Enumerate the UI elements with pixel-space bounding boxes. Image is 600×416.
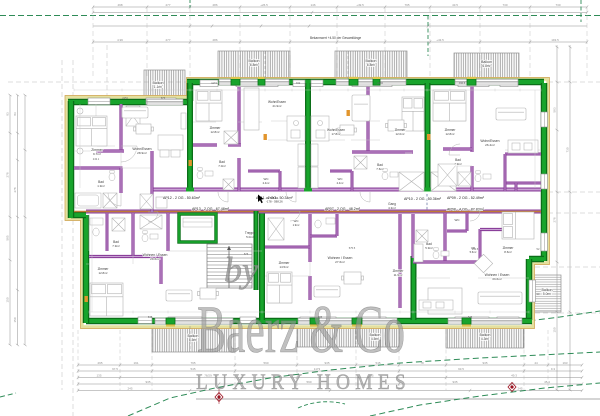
svg-text:1.9m²: 1.9m²	[293, 223, 300, 227]
svg-text:6.8m²: 6.8m²	[250, 63, 258, 67]
svg-text:12.8m²: 12.8m²	[99, 271, 108, 275]
svg-text:146: 146	[310, 3, 315, 7]
svg-text:97.5: 97.5	[112, 367, 118, 371]
svg-text:WC: WC	[294, 219, 300, 223]
svg-text:135: 135	[96, 373, 101, 377]
svg-text:WC: WC	[338, 177, 344, 181]
svg-text:12.0m²: 12.0m²	[396, 132, 405, 136]
svg-text:295: 295	[97, 361, 102, 365]
svg-text:5.9m²: 5.9m²	[425, 246, 432, 250]
svg-text:243.1: 243.1	[93, 157, 100, 161]
svg-text:193.5: 193.5	[551, 38, 559, 42]
svg-text:5.0m²: 5.0m²	[543, 292, 551, 296]
svg-text:545: 545	[468, 315, 473, 319]
svg-text:4.96: 4.96	[117, 38, 123, 42]
svg-text:by: by	[224, 250, 258, 290]
svg-text:28.9m²: 28.9m²	[137, 151, 147, 155]
svg-text:278: 278	[6, 172, 10, 177]
svg-text:AP08 - 4 OG - 87.83m²: AP08 - 4 OG - 87.83m²	[447, 208, 485, 212]
svg-text:7.0m²: 7.0m²	[218, 164, 225, 168]
svg-text:5.0m²: 5.0m²	[246, 235, 254, 239]
svg-text:278: 278	[553, 217, 557, 222]
svg-text:1.1m²: 1.1m²	[154, 85, 162, 89]
svg-text:730: 730	[566, 147, 570, 152]
svg-text:Baerz & Co: Baerz & Co	[197, 291, 405, 367]
svg-text:2453: 2453	[122, 96, 128, 100]
svg-text:575.5: 575.5	[349, 246, 356, 250]
svg-text:+26.5: +26.5	[260, 3, 268, 7]
svg-text:150: 150	[13, 317, 17, 322]
svg-text:AP12 - 2 OG - 50.63m²: AP12 - 2 OG - 50.63m²	[163, 196, 201, 200]
svg-text:730: 730	[555, 3, 560, 7]
svg-text:795: 795	[190, 361, 195, 365]
svg-text:2453: 2453	[377, 81, 383, 85]
svg-text:44: 44	[534, 361, 538, 365]
svg-text:6.8m²: 6.8m²	[482, 64, 490, 68]
svg-text:12.8m²: 12.8m²	[446, 132, 455, 136]
svg-text:245: 245	[127, 386, 132, 390]
svg-text:545: 545	[148, 315, 153, 319]
svg-text:245: 245	[517, 386, 522, 390]
svg-text:4.3m²: 4.3m²	[388, 206, 396, 210]
svg-text:286: 286	[212, 3, 217, 7]
svg-text:Bekannwert +4.50 der Gesamtlä: Bekannwert +4.50 der Gesamtlänge	[310, 36, 361, 40]
svg-text:1.9m²: 1.9m²	[97, 184, 104, 188]
svg-text:150: 150	[6, 297, 10, 302]
svg-text:83: 83	[13, 112, 17, 116]
svg-text:2.4m²: 2.4m²	[337, 181, 344, 185]
svg-text:575: 575	[161, 96, 166, 100]
svg-text:1173: 1173	[211, 81, 217, 85]
svg-text:277: 277	[165, 3, 170, 7]
svg-text:490: 490	[296, 81, 301, 85]
svg-text:-178 - 598.26: -178 - 598.26	[266, 200, 283, 204]
svg-text:286: 286	[212, 38, 217, 42]
svg-text:93.5: 93.5	[458, 367, 464, 371]
svg-text:575: 575	[244, 252, 249, 256]
svg-text:+43.5: +43.5	[436, 38, 444, 42]
svg-text:193: 193	[562, 361, 567, 365]
svg-text:277: 277	[165, 38, 170, 42]
svg-text:490.5: 490.5	[459, 81, 466, 85]
svg-text:8.6m²: 8.6m²	[504, 250, 511, 254]
svg-text:AP10 - 2 OG - 50.36m²: AP10 - 2 OG - 50.36m²	[404, 197, 442, 201]
svg-text:7.9m²: 7.9m²	[454, 162, 461, 166]
svg-text:293.5: 293.5	[472, 247, 479, 251]
svg-text:583: 583	[553, 107, 557, 112]
svg-text:+49.5: +49.5	[356, 3, 364, 7]
svg-text:17.8m²: 17.8m²	[332, 132, 341, 136]
svg-text:935: 935	[482, 361, 487, 365]
svg-text:43.5: 43.5	[452, 3, 458, 7]
svg-text:278: 278	[13, 187, 17, 192]
svg-text:LUXURY HOMES: LUXURY HOMES	[196, 369, 411, 394]
svg-text:AP13 - 2 OG - 67.48m²: AP13 - 2 OG - 67.48m²	[192, 207, 230, 211]
svg-text:9.7m²: 9.7m²	[93, 152, 101, 156]
svg-text:4.3m²: 4.3m²	[481, 337, 489, 341]
svg-text:7.9m²: 7.9m²	[112, 244, 119, 248]
svg-text:935: 935	[452, 380, 457, 384]
svg-text:14.5m²: 14.5m²	[280, 265, 289, 269]
svg-text:935: 935	[318, 315, 323, 319]
svg-text:11.9m²: 11.9m²	[394, 273, 403, 277]
svg-text:AP07 - 2 OG - 48.2m²: AP07 - 2 OG - 48.2m²	[325, 207, 361, 211]
svg-text:730: 730	[502, 3, 507, 7]
svg-text:45.3: 45.3	[544, 380, 550, 384]
svg-text:150: 150	[553, 327, 557, 332]
svg-text:AP09 - 2 OG - 52.49m²: AP09 - 2 OG - 52.49m²	[447, 196, 485, 200]
svg-text:12.8m²: 12.8m²	[211, 130, 220, 134]
svg-text:6.8m²: 6.8m²	[367, 63, 375, 67]
svg-text:191: 191	[133, 361, 138, 365]
svg-text:2.4m²: 2.4m²	[263, 181, 270, 185]
svg-text:WC: WC	[455, 218, 461, 222]
svg-text:585: 585	[6, 235, 10, 240]
svg-text:26.4m²: 26.4m²	[485, 143, 495, 147]
svg-text:9.3: 9.3	[551, 367, 556, 371]
svg-text:27.6m²: 27.6m²	[335, 260, 345, 264]
svg-text:83: 83	[6, 112, 10, 116]
svg-text:49.3: 49.3	[511, 373, 517, 377]
svg-text:WC: WC	[264, 177, 270, 181]
svg-text:7.6m²: 7.6m²	[376, 167, 383, 171]
svg-text:498: 498	[117, 3, 122, 7]
svg-text:33.6m²: 33.6m²	[492, 277, 502, 281]
svg-text:21.9m²: 21.9m²	[273, 104, 282, 108]
svg-text:29.6m²: 29.6m²	[150, 257, 160, 261]
svg-text:935: 935	[145, 380, 150, 384]
svg-text:795: 795	[404, 3, 409, 7]
